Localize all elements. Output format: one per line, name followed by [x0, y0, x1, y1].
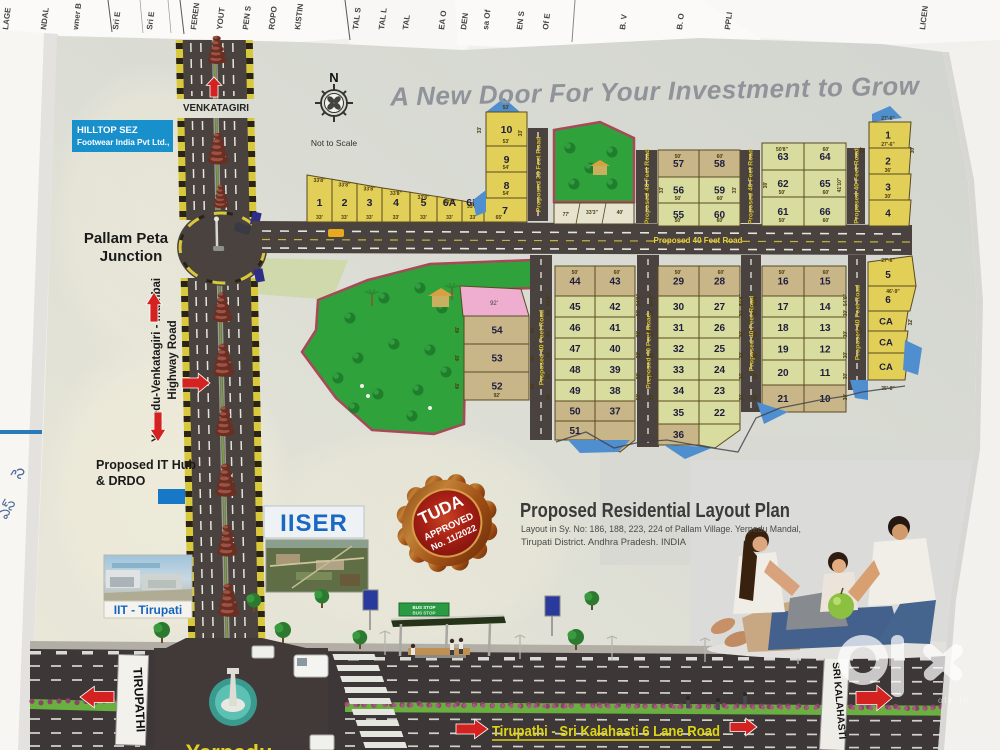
- svg-text:40': 40': [617, 210, 624, 216]
- svg-text:33': 33': [860, 147, 866, 154]
- svg-text:32': 32': [908, 319, 914, 326]
- svg-text:Tirupathi - Sri Kalahasti 6 L: Tirupathi - Sri Kalahasti 6 Lane Road: [492, 723, 720, 740]
- svg-text:26: 26: [714, 323, 726, 334]
- svg-text:33': 33': [732, 187, 738, 194]
- svg-text:33'8": 33'8": [339, 182, 352, 188]
- svg-text:33': 33': [470, 215, 477, 221]
- svg-text:38': 38': [763, 182, 769, 189]
- svg-text:30': 30': [843, 310, 849, 317]
- svg-text:33'8": 33'8": [418, 195, 431, 201]
- svg-text:33'8": 33'8": [444, 200, 457, 206]
- svg-text:38: 38: [609, 386, 621, 397]
- svg-text:30': 30': [843, 373, 849, 380]
- svg-text:IISER: IISER: [280, 510, 348, 537]
- svg-text:5: 5: [885, 270, 891, 281]
- svg-text:65: 65: [819, 179, 831, 190]
- svg-text:60': 60': [823, 218, 830, 224]
- svg-text:Junction: Junction: [100, 248, 163, 265]
- svg-text:54'8": 54'8": [546, 293, 552, 306]
- svg-text:3: 3: [885, 183, 891, 194]
- svg-text:4: 4: [393, 197, 399, 209]
- svg-text:42: 42: [609, 302, 621, 313]
- svg-text:BUS STOP: BUS STOP: [413, 611, 436, 616]
- svg-text:30': 30': [636, 373, 642, 380]
- svg-text:Yerpedu: Yerpedu: [186, 740, 273, 750]
- svg-text:18: 18: [777, 323, 789, 334]
- svg-text:6: 6: [885, 295, 891, 306]
- svg-text:36: 36: [673, 430, 685, 441]
- svg-text:30': 30': [753, 394, 759, 401]
- svg-text:32: 32: [673, 344, 685, 355]
- svg-text:54'6": 54'6": [739, 293, 745, 306]
- svg-text:Proposed Residential Layout Pl: Proposed Residential Layout Plan: [520, 499, 790, 522]
- svg-text:30': 30': [885, 194, 892, 200]
- svg-text:33': 33': [659, 187, 665, 194]
- svg-text:45': 45': [530, 355, 536, 362]
- svg-text:30': 30': [843, 394, 849, 401]
- svg-text:33': 33': [316, 215, 323, 221]
- svg-text:30': 30': [649, 352, 655, 359]
- svg-text:30': 30': [636, 394, 642, 401]
- svg-text:50': 50': [779, 270, 786, 276]
- svg-text:o l x . i n: o l x . i n: [938, 696, 968, 705]
- svg-text:30': 30': [753, 373, 759, 380]
- svg-text:8: 8: [504, 180, 510, 192]
- svg-text:22: 22: [714, 408, 726, 419]
- svg-text:50': 50': [675, 154, 682, 160]
- svg-text:30': 30': [739, 310, 745, 317]
- svg-text:30': 30': [858, 327, 864, 334]
- svg-text:CA: CA: [879, 338, 893, 349]
- svg-text:30': 30': [739, 373, 745, 380]
- svg-text:92': 92': [494, 393, 501, 399]
- svg-text:60': 60': [823, 147, 830, 153]
- svg-text:33'3": 33'3": [586, 210, 599, 216]
- svg-text:15: 15: [819, 277, 831, 288]
- svg-text:65': 65': [496, 215, 503, 221]
- svg-text:45': 45': [455, 327, 461, 334]
- svg-text:50': 50': [779, 190, 786, 196]
- svg-text:45: 45: [569, 302, 581, 313]
- svg-text:46: 46: [569, 323, 581, 334]
- svg-text:Proposed 40 Feet Road: Proposed 40 Feet Road: [539, 310, 546, 386]
- svg-text:13: 13: [819, 323, 831, 334]
- svg-text:53': 53': [503, 139, 510, 145]
- svg-text:30': 30': [636, 310, 642, 317]
- svg-text:43: 43: [609, 277, 621, 288]
- svg-text:30': 30': [843, 352, 849, 359]
- svg-text:12: 12: [819, 345, 831, 356]
- svg-text:30': 30': [546, 394, 552, 401]
- svg-text:Proposed 40 Feet Road: Proposed 40 Feet Road: [855, 285, 862, 361]
- svg-text:2: 2: [885, 157, 891, 168]
- svg-text:23: 23: [714, 386, 726, 397]
- svg-text:14: 14: [819, 302, 831, 313]
- svg-text:4: 4: [885, 209, 891, 220]
- svg-text:IIT - Tirupati: IIT - Tirupati: [114, 603, 182, 617]
- svg-text:47: 47: [569, 344, 581, 355]
- svg-text:7: 7: [502, 205, 508, 217]
- svg-text:Highway Road: Highway Road: [167, 320, 179, 399]
- svg-text:49: 49: [569, 386, 581, 397]
- svg-text:21: 21: [777, 394, 789, 405]
- svg-text:64: 64: [819, 152, 831, 163]
- svg-text:33': 33': [477, 127, 483, 134]
- svg-text:33': 33': [393, 215, 400, 221]
- svg-text:BUS STOP: BUS STOP: [413, 605, 436, 610]
- svg-text:45': 45': [455, 355, 461, 362]
- svg-text:59: 59: [714, 186, 726, 197]
- svg-text:10: 10: [501, 124, 513, 136]
- svg-text:1: 1: [885, 131, 891, 142]
- svg-text:30': 30': [910, 147, 916, 154]
- svg-text:25: 25: [714, 344, 726, 355]
- svg-text:Proposed IT Hub: Proposed IT Hub: [96, 458, 196, 472]
- svg-text:30': 30': [753, 331, 759, 338]
- svg-text:Proposed 40 Feet Road: Proposed 40 Feet Road: [644, 149, 651, 225]
- svg-text:50': 50': [675, 270, 682, 276]
- svg-text:48: 48: [569, 365, 581, 376]
- svg-text:54'6": 54'6": [843, 293, 849, 306]
- svg-text:CA: CA: [879, 362, 893, 373]
- svg-text:30': 30': [546, 373, 552, 380]
- svg-text:41: 41: [609, 323, 621, 334]
- svg-text:66: 66: [819, 207, 831, 218]
- svg-text:62: 62: [777, 179, 789, 190]
- svg-text:24: 24: [714, 365, 726, 376]
- svg-text:Proposed 33 Feet Road: Proposed 33 Feet Road: [536, 137, 543, 213]
- svg-text:33': 33': [518, 130, 524, 137]
- svg-text:58: 58: [714, 159, 726, 170]
- svg-text:30': 30': [753, 310, 759, 317]
- svg-text:27'-6": 27'-6": [881, 142, 895, 148]
- svg-text:N: N: [329, 70, 338, 85]
- svg-text:50': 50': [675, 196, 682, 202]
- svg-text:30': 30': [649, 373, 655, 380]
- svg-text:45': 45': [455, 383, 461, 390]
- svg-text:29: 29: [673, 277, 685, 288]
- svg-text:30': 30': [843, 331, 849, 338]
- svg-text:54'6": 54'6": [636, 293, 642, 306]
- svg-text:52: 52: [491, 382, 503, 393]
- svg-text:37: 37: [609, 407, 621, 418]
- svg-text:50': 50': [572, 270, 579, 276]
- svg-text:54: 54: [491, 326, 503, 337]
- svg-text:60': 60': [717, 218, 724, 224]
- svg-text:31: 31: [673, 323, 685, 334]
- svg-text:TAL: TAL: [401, 14, 412, 30]
- svg-text:33': 33': [420, 215, 427, 221]
- svg-text:33': 33': [446, 215, 453, 221]
- svg-text:77': 77': [563, 212, 570, 218]
- svg-text:30': 30': [636, 331, 642, 338]
- svg-text:44: 44: [569, 277, 581, 288]
- svg-text:9: 9: [504, 154, 510, 166]
- svg-text:60': 60': [823, 270, 830, 276]
- svg-text:33: 33: [673, 365, 685, 376]
- svg-text:50': 50': [779, 218, 786, 224]
- svg-text:61: 61: [777, 207, 789, 218]
- svg-text:CA: CA: [879, 317, 893, 328]
- svg-text:30': 30': [649, 310, 655, 317]
- svg-text:33'8": 33'8": [390, 191, 403, 197]
- svg-text:Not to Scale: Not to Scale: [311, 138, 358, 148]
- svg-text:Proposed 40 Feet Road: Proposed 40 Feet Road: [748, 149, 755, 225]
- svg-text:30': 30': [739, 352, 745, 359]
- svg-text:50'8": 50'8": [776, 147, 789, 153]
- svg-text:33'8": 33'8": [314, 178, 327, 184]
- svg-text:53: 53: [491, 354, 503, 365]
- svg-text:36': 36': [885, 168, 892, 174]
- svg-text:60': 60': [717, 154, 724, 160]
- svg-text:50: 50: [569, 407, 581, 418]
- svg-text:54': 54': [503, 165, 510, 171]
- svg-text:30': 30': [739, 331, 745, 338]
- svg-text:27: 27: [714, 302, 726, 313]
- svg-text:19: 19: [777, 345, 789, 356]
- svg-text:40: 40: [609, 344, 621, 355]
- svg-text:92': 92': [490, 301, 498, 307]
- svg-text:30': 30': [753, 352, 759, 359]
- svg-text:11: 11: [820, 368, 831, 379]
- svg-text:45': 45': [530, 327, 536, 334]
- svg-text:63: 63: [777, 152, 789, 163]
- svg-text:54'8": 54'8": [753, 293, 759, 306]
- svg-text:30': 30': [546, 331, 552, 338]
- svg-text:39: 39: [609, 365, 621, 376]
- svg-text:Footwear India Pvt Ltd.,: Footwear India Pvt Ltd.,: [77, 138, 169, 147]
- svg-text:30': 30': [739, 394, 745, 401]
- svg-text:2: 2: [342, 197, 348, 209]
- svg-text:54'8": 54'8": [649, 293, 655, 306]
- svg-text:Proposed 40 Feet Road: Proposed 40 Feet Road: [854, 148, 861, 224]
- svg-text:Tirupati District. Andhra Prad: Tirupati District. Andhra Pradesh. INDIA: [521, 537, 687, 547]
- svg-text:Layout in Sy. No: 186, 188, 22: Layout in Sy. No: 186, 188, 223, 224 of …: [521, 524, 801, 534]
- svg-text:50': 50': [675, 218, 682, 224]
- svg-text:54': 54': [503, 191, 510, 197]
- svg-text:30': 30': [546, 310, 552, 317]
- svg-text:27'-6": 27'-6": [881, 258, 895, 264]
- svg-text:60': 60': [614, 270, 621, 276]
- svg-text:33'8": 33'8": [364, 187, 377, 193]
- svg-text:60': 60': [717, 196, 724, 202]
- svg-text:16: 16: [777, 277, 789, 288]
- svg-text:30': 30': [636, 352, 642, 359]
- svg-text:45': 45': [530, 383, 536, 390]
- svg-text:41'10": 41'10": [837, 177, 843, 192]
- svg-text:HILLTOP SEZ: HILLTOP SEZ: [77, 125, 138, 136]
- svg-text:46'-9": 46'-9": [886, 289, 900, 295]
- svg-text:20: 20: [777, 368, 789, 379]
- svg-text:30': 30': [649, 394, 655, 401]
- svg-text:1: 1: [317, 197, 323, 209]
- svg-text:34: 34: [673, 386, 685, 397]
- svg-text:VENKATAGIRI: VENKATAGIRI: [183, 103, 249, 114]
- svg-text:27'-6": 27'-6": [881, 116, 895, 122]
- svg-text:17: 17: [777, 302, 789, 313]
- svg-text:Pallam Peta: Pallam Peta: [84, 230, 169, 247]
- svg-text:Proposed 40 Feet Road: Proposed 40 Feet Road: [654, 236, 743, 245]
- svg-text:30': 30': [649, 331, 655, 338]
- svg-text:56: 56: [673, 186, 685, 197]
- svg-text:3: 3: [367, 197, 373, 209]
- svg-text:30': 30': [546, 352, 552, 359]
- svg-text:57: 57: [673, 159, 685, 170]
- svg-text:28: 28: [714, 277, 726, 288]
- svg-text:60': 60': [718, 270, 725, 276]
- svg-text:35: 35: [673, 408, 685, 419]
- svg-text:60': 60': [823, 190, 830, 196]
- svg-text:& DRDO: & DRDO: [96, 474, 146, 488]
- svg-text:30: 30: [673, 302, 685, 313]
- svg-text:33': 33': [366, 215, 373, 221]
- svg-text:33': 33': [341, 215, 348, 221]
